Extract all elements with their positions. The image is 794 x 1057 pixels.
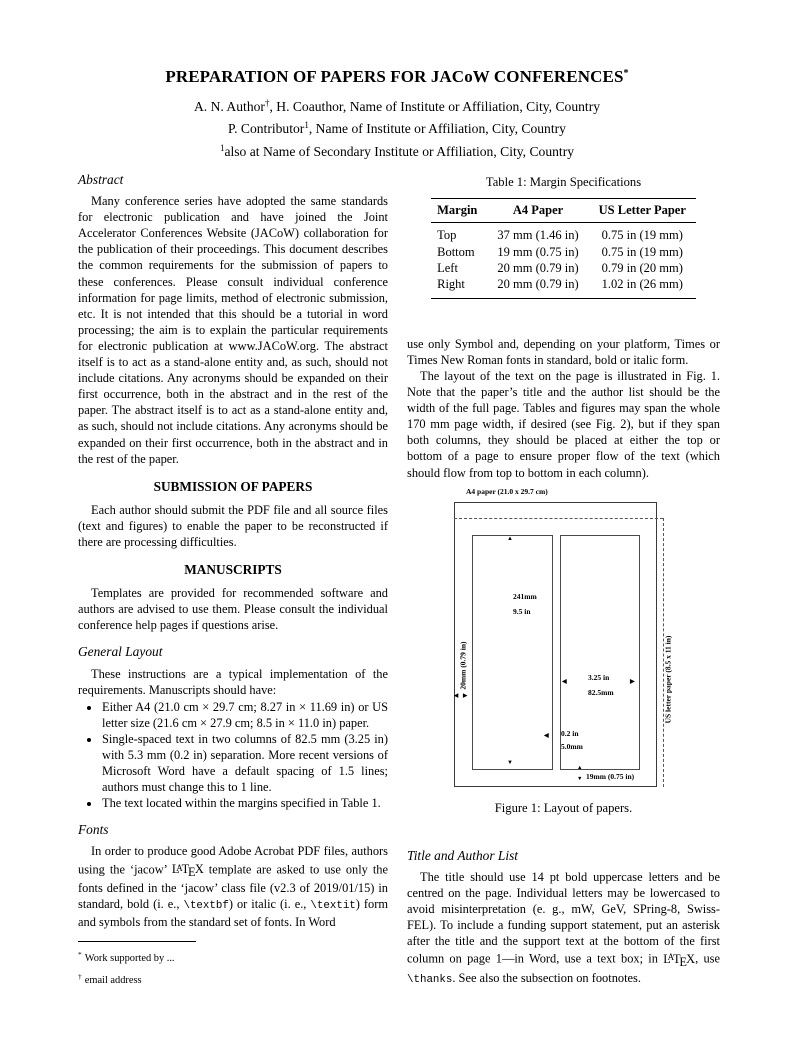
figure-layout-diagram: A4 paper (21.0 x 29.7 cm) ▲ ▼ 241mm9.5 i…	[450, 489, 690, 793]
figure-bottom-margin-label: 19mm (0.75 in)	[586, 772, 634, 781]
footnote-marker: †	[78, 972, 82, 981]
paper-title-text: PREPARATION OF PAPERS FOR JACoW CONFEREN…	[165, 67, 623, 86]
arrow-up-icon: ▲	[577, 766, 582, 772]
table-header-cell: US Letter Paper	[589, 199, 696, 223]
arrow-right-icon: ▶	[463, 694, 467, 700]
footnote-item: †email address	[78, 968, 388, 990]
subsection-fonts: Fonts	[78, 822, 388, 838]
author-name: P. Contributor	[228, 121, 304, 136]
footnote-rule	[78, 941, 196, 942]
table-row: Bottom 19 mm (0.75 in) 0.75 in (19 mm)	[431, 244, 696, 260]
author-affiliation: , Name of Institute or Affiliation, City…	[309, 121, 566, 136]
author-line: 1also at Name of Secondary Institute or …	[0, 139, 794, 161]
abstract-heading: Abstract	[78, 172, 388, 188]
spacer	[407, 816, 720, 837]
figure-usletter-label: US letter paper (8.5 x 11 in)	[664, 627, 673, 731]
figure-a4-label: A4 paper (21.0 x 29.7 cm)	[466, 487, 548, 496]
bullet-item: The text located within the margins spec…	[101, 795, 388, 811]
margin-specifications-table: Margin A4 Paper US Letter Paper Top 37 m…	[431, 198, 696, 299]
title-block: PREPARATION OF PAPERS FOR JACoW CONFEREN…	[0, 63, 794, 161]
submission-paragraph: Each author should submit the PDF file a…	[78, 502, 388, 550]
subsection-title-author-list: Title and Author List	[407, 848, 720, 864]
table-cell: 0.79 in (20 mm)	[589, 260, 696, 276]
arrow-down-icon: ▼	[577, 777, 582, 783]
bullet-item: Either A4 (21.0 cm × 29.7 cm; 8.27 in × …	[101, 699, 388, 731]
author-affiliation: also at Name of Secondary Institute or A…	[224, 144, 574, 159]
latex-command-textbf: \textbf	[183, 900, 228, 912]
latex-command-thanks: \thanks	[407, 974, 452, 986]
figure-left-margin-label: 20mm (0.79 in)	[459, 635, 468, 695]
latex-logo: LATEX	[663, 952, 695, 966]
table-cell: 0.75 in (19 mm)	[589, 244, 696, 260]
footnote-marker: *	[78, 950, 82, 959]
footnote-item: *Work supported by ...	[78, 946, 388, 968]
abstract-paragraph: Many conference series have adopted the …	[78, 193, 388, 467]
table-cell: 1.02 in (26 mm)	[589, 276, 696, 298]
figure-column-height-label: 241mm9.5 in	[513, 589, 537, 619]
figure-column-gap-label: 0.2 in5.0mm	[561, 727, 583, 753]
arrow-down-icon: ▼	[507, 760, 513, 766]
spacer	[407, 299, 720, 336]
table-header-row: Margin A4 Paper US Letter Paper	[431, 199, 696, 223]
figure-caption: Figure 1: Layout of papers.	[407, 800, 720, 816]
body-paragraph: use only Symbol and, depending on your p…	[407, 336, 720, 368]
footnote-text: email address	[85, 975, 142, 986]
table-cell: 20 mm (0.79 in)	[487, 260, 588, 276]
body-paragraph: The layout of the text on the page is il…	[407, 368, 720, 481]
table-header-cell: Margin	[431, 199, 487, 223]
table-cell: Right	[431, 276, 487, 298]
bullet-item: Single-spaced text in two columns of 82.…	[101, 731, 388, 795]
author-line: P. Contributor1, Name of Institute or Af…	[0, 116, 794, 138]
section-heading-manuscripts: MANUSCRIPTS	[78, 562, 388, 578]
right-column: Table 1: Margin Specifications Margin A4…	[407, 172, 720, 988]
latex-command-textit: \textit	[310, 900, 355, 912]
paper-title: PREPARATION OF PAPERS FOR JACoW CONFEREN…	[0, 63, 794, 87]
arrow-left-icon: ◀	[544, 733, 549, 739]
latex-logo: LATEX	[172, 862, 204, 876]
arrow-left-icon: ◀	[454, 694, 458, 700]
table-cell: Top	[431, 223, 487, 244]
table-header-cell: A4 Paper	[487, 199, 588, 223]
author-affiliation: , H. Coauthor, Name of Institute or Affi…	[269, 99, 600, 114]
arrow-left-icon: ◀	[562, 679, 567, 685]
table-cell: 37 mm (1.46 in)	[487, 223, 588, 244]
footnote-block: *Work supported by ... †email address	[78, 941, 388, 989]
table-cell: Left	[431, 260, 487, 276]
figure-1: A4 paper (21.0 x 29.7 cm) ▲ ▼ 241mm9.5 i…	[407, 489, 720, 816]
table-cell: 19 mm (0.75 in)	[487, 244, 588, 260]
general-layout-intro: These instructions are a typical impleme…	[78, 666, 388, 698]
manuscripts-paragraph: Templates are provided for recommended s…	[78, 585, 388, 633]
table-row: Top 37 mm (1.46 in) 0.75 in (19 mm)	[431, 223, 696, 244]
footnote-text: Work supported by ...	[85, 953, 175, 964]
figure-usletter-top-dashed-line	[454, 518, 663, 519]
layout-bullet-list: Either A4 (21.0 cm × 29.7 cm; 8.27 in × …	[78, 699, 388, 812]
left-column: Abstract Many conference series have ado…	[78, 172, 388, 931]
table-cell: Bottom	[431, 244, 487, 260]
author-line: A. N. Author†, H. Coauthor, Name of Inst…	[0, 94, 794, 116]
arrow-up-icon: ▲	[507, 536, 513, 542]
fonts-text: ) or italic (i. e.,	[229, 897, 311, 911]
table-cell: 0.75 in (19 mm)	[589, 223, 696, 244]
title-footnote-marker: *	[624, 68, 629, 79]
title-author-text: . See also the subsection on footnotes.	[452, 971, 641, 985]
table-row: Right 20 mm (0.79 in) 1.02 in (26 mm)	[431, 276, 696, 298]
figure-left-column-rect	[472, 535, 553, 770]
table-cell: 20 mm (0.79 in)	[487, 276, 588, 298]
section-heading-submission: SUBMISSION OF PAPERS	[78, 479, 388, 495]
author-list: A. N. Author†, H. Coauthor, Name of Inst…	[0, 94, 794, 161]
title-author-paragraph: The title should use 14 pt bold uppercas…	[407, 869, 720, 988]
table-caption: Table 1: Margin Specifications	[407, 174, 720, 190]
author-name: A. N. Author	[194, 99, 265, 114]
title-author-text: , use	[695, 952, 720, 966]
fonts-paragraph: In order to produce good Adobe Acrobat P…	[78, 843, 388, 930]
figure-column-width-label: 3.25 in82.5mm	[588, 670, 614, 700]
subsection-general-layout: General Layout	[78, 644, 388, 660]
arrow-right-icon: ▶	[630, 679, 635, 685]
paper-page: PREPARATION OF PAPERS FOR JACoW CONFEREN…	[0, 0, 794, 1057]
table-row: Left 20 mm (0.79 in) 0.79 in (20 mm)	[431, 260, 696, 276]
